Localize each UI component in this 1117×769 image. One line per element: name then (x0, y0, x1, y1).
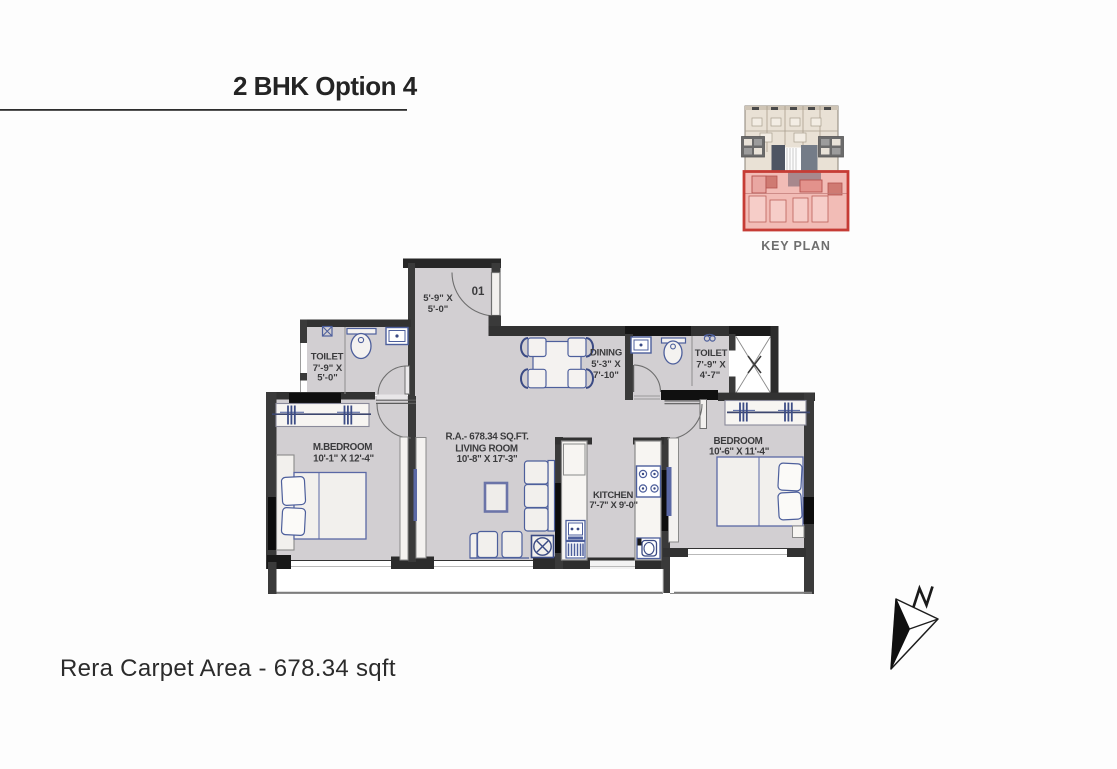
svg-text:7'-10": 7'-10" (593, 370, 619, 381)
svg-text:BEDROOM: BEDROOM (713, 436, 762, 447)
svg-text:KEY PLAN: KEY PLAN (761, 239, 830, 253)
svg-text:DINING: DINING (590, 348, 622, 359)
svg-text:4'-7": 4'-7" (700, 370, 721, 381)
svg-text:5'-0": 5'-0" (317, 373, 338, 384)
svg-text:5'-3" X: 5'-3" X (591, 359, 621, 370)
svg-text:LIVING ROOM: LIVING ROOM (455, 444, 518, 455)
svg-text:7'-9" X: 7'-9" X (696, 360, 726, 371)
svg-text:TOILET: TOILET (695, 348, 728, 359)
svg-text:10'-6" X 11'-4": 10'-6" X 11'-4" (709, 447, 769, 458)
svg-text:10'-8" X 17'-3": 10'-8" X 17'-3" (457, 454, 518, 465)
svg-text:R.A.- 678.34 SQ.FT.: R.A.- 678.34 SQ.FT. (445, 432, 529, 443)
svg-text:Rera Carpet Area - 678.34 sqft: Rera Carpet Area - 678.34 sqft (60, 655, 396, 682)
svg-text:5'-9" X: 5'-9" X (423, 293, 453, 304)
svg-text:M.BEDROOM: M.BEDROOM (313, 442, 372, 453)
svg-text:7'-7'' X 9'-0'': 7'-7'' X 9'-0'' (589, 500, 637, 511)
svg-text:5'-0": 5'-0" (428, 304, 449, 315)
svg-text:TOILET: TOILET (311, 352, 344, 363)
svg-text:01: 01 (472, 286, 485, 298)
svg-text:10'-1" X 12'-4": 10'-1" X 12'-4" (313, 454, 374, 465)
svg-text:2 BHK Option 4: 2 BHK Option 4 (233, 71, 418, 101)
